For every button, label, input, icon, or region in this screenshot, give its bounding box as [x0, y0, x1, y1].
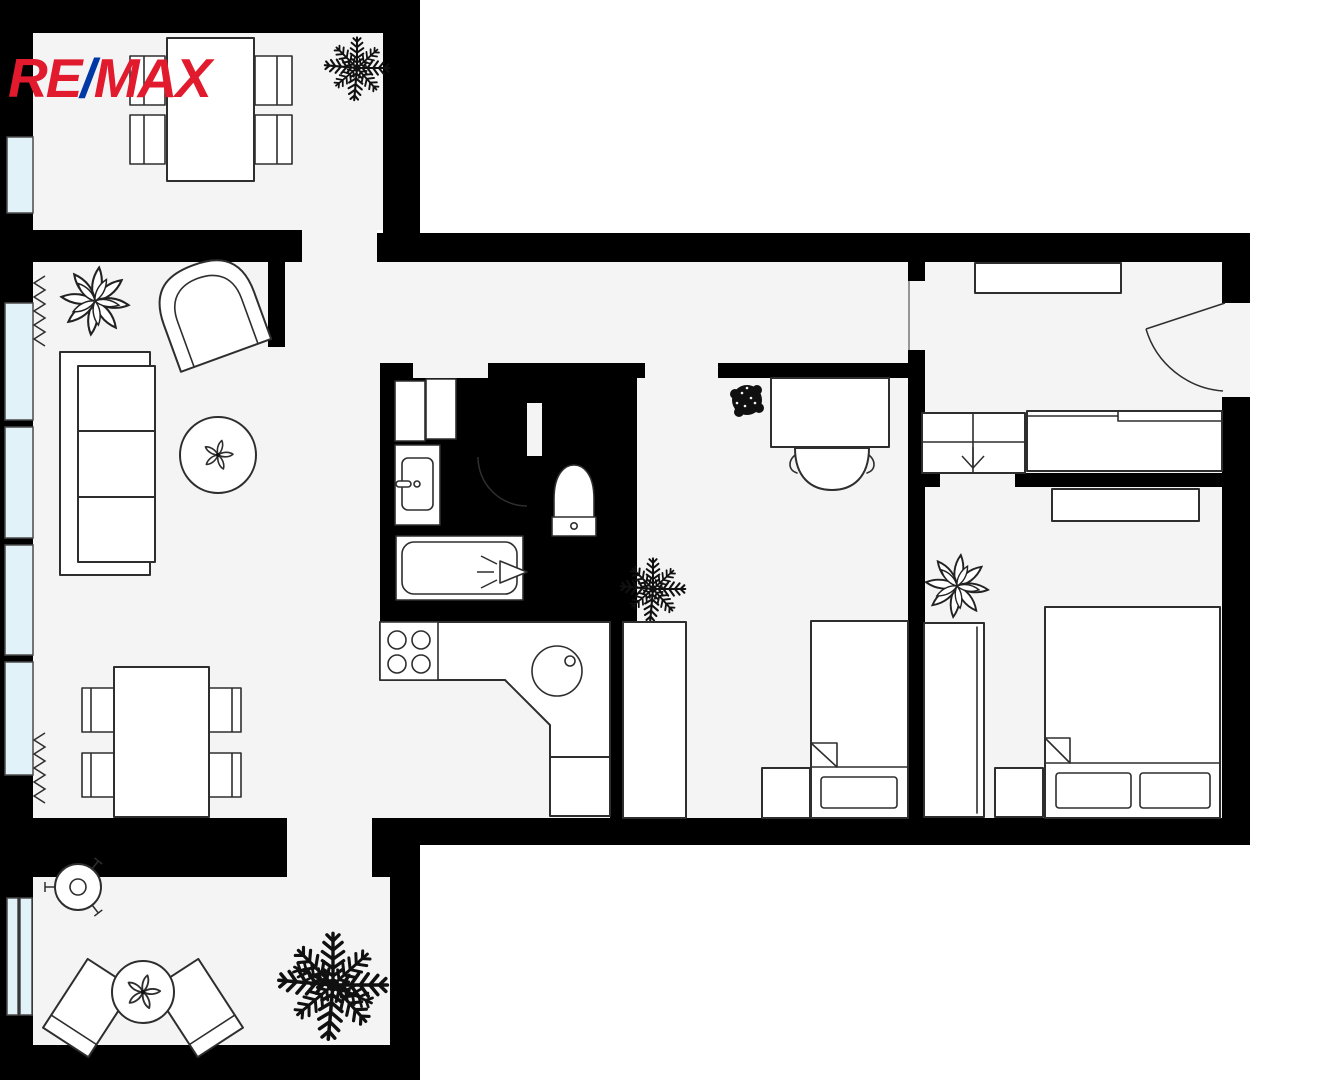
- sink-vanity-icon: [395, 445, 440, 525]
- window: [20, 898, 32, 1015]
- kitchen-sink-icon: [532, 646, 582, 696]
- window: [5, 427, 33, 538]
- wall-segment: [0, 0, 33, 262]
- wall-segment: [0, 0, 420, 33]
- bathtub-icon: [396, 536, 527, 600]
- wall-segment: [908, 473, 940, 487]
- nightstand-icon: [995, 768, 1043, 817]
- wall-segment: [377, 233, 1250, 262]
- opening-hall-passage: [908, 281, 925, 350]
- window: [7, 898, 18, 1015]
- wall-segment: [420, 818, 1250, 845]
- wardrobe-icon: [924, 623, 984, 817]
- chair-icon: [255, 115, 292, 164]
- single-bed-icon: [811, 621, 908, 818]
- chair-icon: [209, 688, 241, 732]
- chair-icon: [82, 753, 114, 797]
- window: [5, 545, 33, 655]
- opening-wc-door: [527, 403, 542, 456]
- floor-plan: RE/MAX: [0, 0, 1319, 1080]
- opening-terrace-door: [287, 818, 372, 877]
- opening-bathroom-door: [413, 363, 488, 378]
- wall-stub-living: [268, 240, 285, 347]
- wall-segment: [908, 262, 925, 281]
- bedroom-shelf-icon: [1052, 489, 1199, 521]
- wall-segment: [637, 363, 645, 378]
- hall-shelf-icon: [975, 263, 1121, 293]
- wall-segment: [383, 0, 420, 262]
- nightstand-icon: [762, 768, 810, 818]
- toilet-icon: [552, 465, 596, 536]
- wall-segment: [1222, 233, 1250, 303]
- opening-balcony-door: [302, 230, 377, 262]
- kitchen-cabinet-icon: [550, 757, 610, 816]
- logo-max: MAX: [94, 47, 216, 109]
- window: [5, 662, 33, 775]
- washing-machine-icon: [395, 381, 425, 441]
- wardrobe-icon: [623, 622, 686, 818]
- chair-icon: [130, 115, 165, 164]
- bathroom-cabinet-icon: [426, 379, 456, 439]
- opening-entrance: [1222, 303, 1250, 397]
- wall-segment: [0, 230, 302, 262]
- remax-logo: RE/MAX: [8, 47, 215, 109]
- wall-segment: [390, 845, 420, 1080]
- chair-icon: [209, 753, 241, 797]
- window: [7, 137, 33, 213]
- wall-segment: [1015, 473, 1222, 487]
- sofa-icon: [60, 352, 155, 575]
- wall-segment: [0, 818, 287, 877]
- stove-icon: [380, 622, 438, 680]
- opening-middle-room-door: [645, 363, 718, 378]
- double-bed-icon: [1045, 607, 1220, 818]
- small-plant-icon: [730, 385, 764, 417]
- chair-icon: [82, 688, 114, 732]
- shoe-cabinet-icon: [922, 413, 1025, 473]
- coffee-table-icon: [180, 417, 256, 493]
- wall-segment: [1222, 397, 1250, 845]
- round-table-icon: [112, 961, 174, 1023]
- opening-bedroom-door: [940, 473, 1015, 487]
- chair-icon: [255, 56, 292, 105]
- floor-plan-canvas: RE/MAX: [0, 0, 1319, 1080]
- wall-segment: [718, 363, 908, 378]
- hall-wardrobe-icon: [1027, 411, 1222, 471]
- window: [5, 303, 33, 420]
- logo-re: RE: [8, 47, 85, 109]
- room-wc: [552, 465, 596, 536]
- dining-table-icon: [114, 667, 209, 817]
- desk-icon: [771, 378, 889, 447]
